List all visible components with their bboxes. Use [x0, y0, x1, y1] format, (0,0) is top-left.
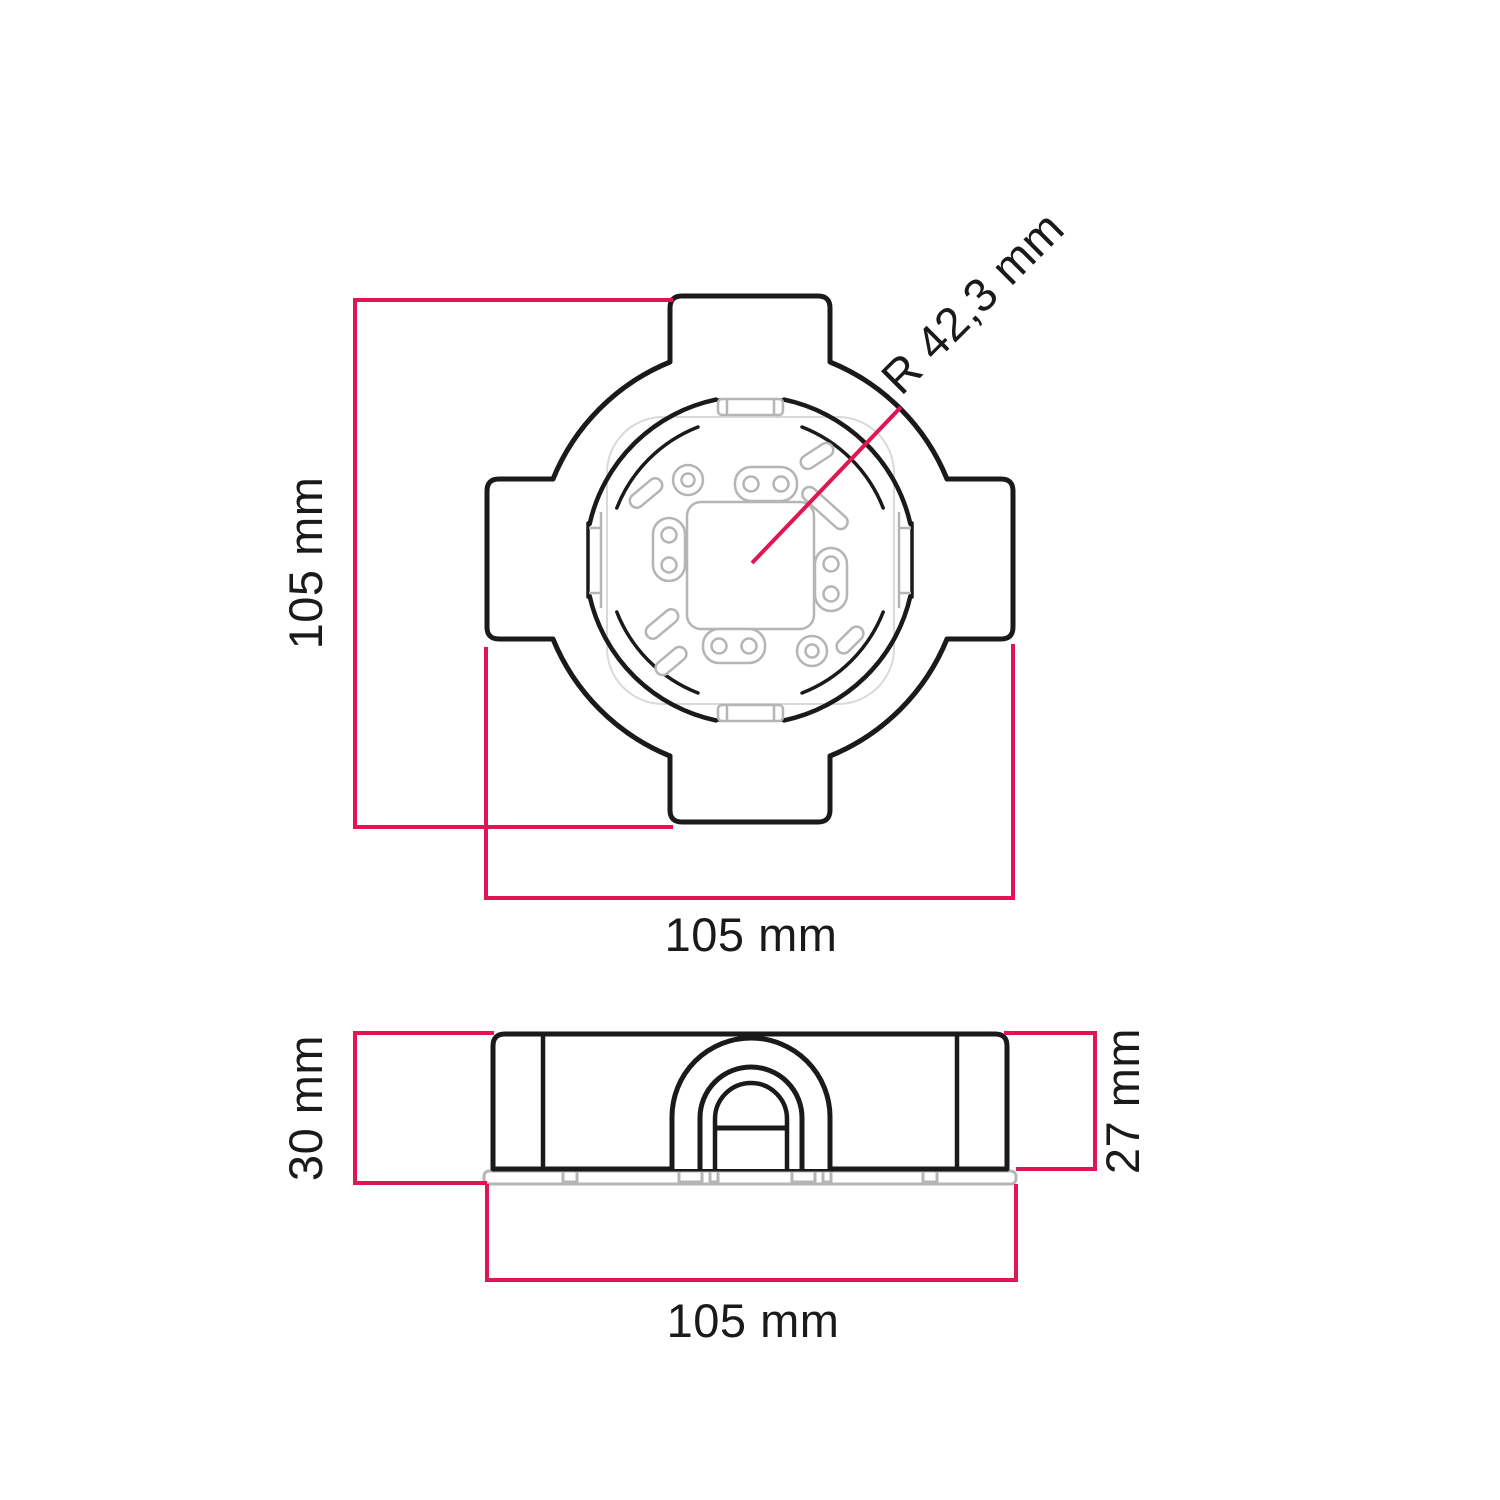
top-view-width-label: 105 mm: [665, 908, 838, 961]
top-view-height-label: 105 mm: [279, 477, 332, 650]
plate-notch: [710, 1171, 718, 1182]
technical-drawing: 105 mm 105 mm R 42,3 mm: [0, 0, 1500, 1500]
plate-notch: [823, 1171, 831, 1182]
top-view: 105 mm 105 mm R 42,3 mm: [279, 201, 1074, 961]
dim-line-side-height-right: [1004, 1033, 1095, 1169]
drawing-canvas: 105 mm 105 mm R 42,3 mm: [0, 0, 1500, 1500]
cable-arch-outer: [672, 1038, 830, 1169]
terminal-hole: [824, 587, 839, 602]
terminal-hole: [662, 558, 677, 573]
top-view-radius-label: R 42,3 mm: [871, 201, 1074, 404]
side-view-height-right-label: 27 mm: [1096, 1028, 1149, 1174]
terminal-hole: [742, 639, 757, 654]
screw-hole-bottom-right: [806, 645, 819, 658]
side-view: 30 mm 27 mm 105 mm: [279, 1028, 1149, 1347]
terminal-hole: [824, 557, 839, 572]
plate-notch: [563, 1171, 577, 1182]
dim-line-side-height-left: [355, 1033, 494, 1183]
terminal-hole: [744, 477, 759, 492]
plate-notch: [923, 1171, 937, 1182]
terminal-hole: [774, 477, 789, 492]
plate-notch: [792, 1171, 815, 1182]
terminal-hole: [662, 528, 677, 543]
dim-line-side-width: [487, 1184, 1016, 1280]
center-cover-plate: [687, 502, 814, 629]
side-view-width-label: 105 mm: [667, 1294, 840, 1347]
plate-notch: [679, 1171, 702, 1182]
side-view-height-left-label: 30 mm: [279, 1035, 332, 1181]
terminal-hole: [712, 639, 727, 654]
screw-hole-top-left: [682, 474, 695, 487]
